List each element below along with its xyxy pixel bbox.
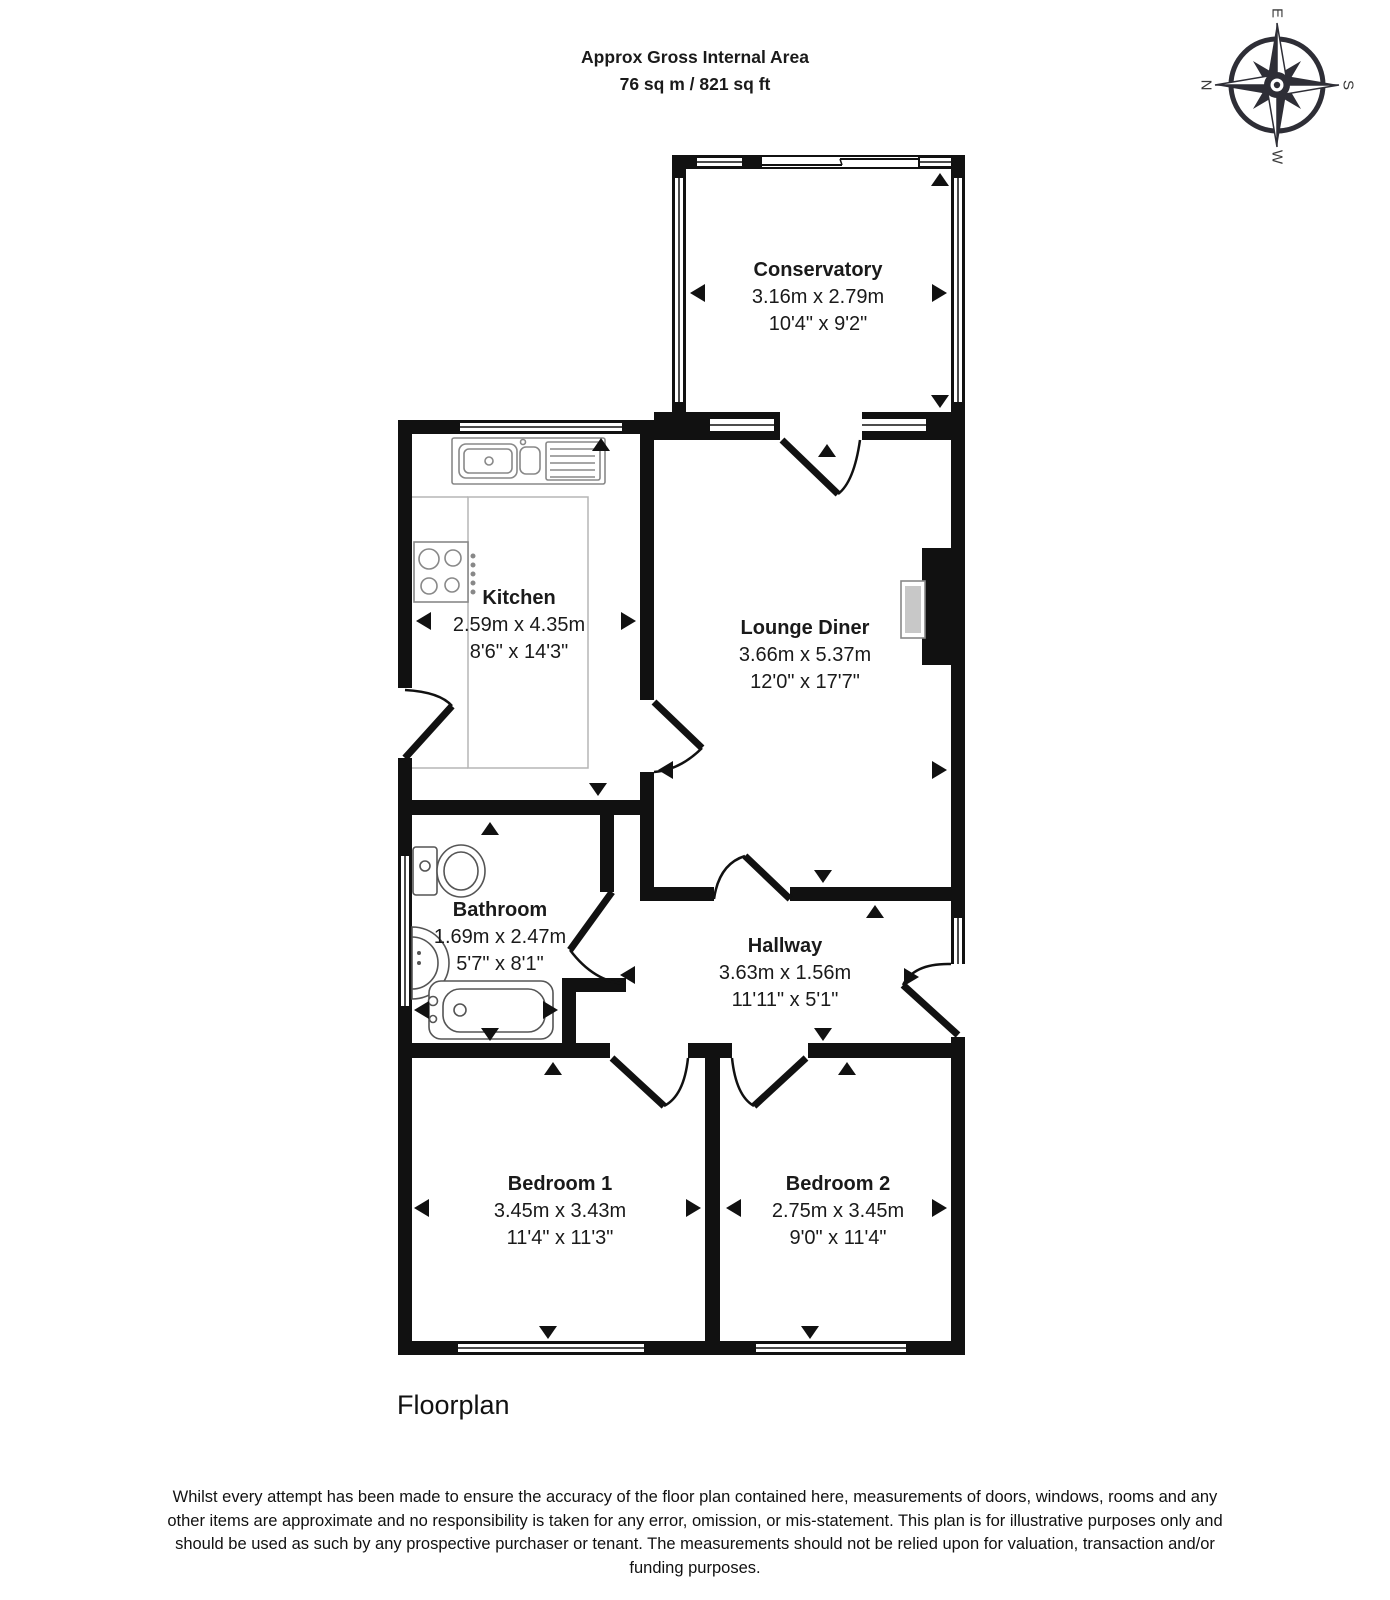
- room-imperial: 11'11" x 5'1": [732, 989, 839, 1011]
- room-name: Lounge Diner: [741, 617, 870, 639]
- arrow-down-icon: [801, 1326, 819, 1339]
- room-metric: 3.45m x 3.43m: [494, 1200, 626, 1222]
- room-metric: 1.69m x 2.47m: [434, 926, 566, 948]
- room-name: Bedroom 1: [508, 1173, 612, 1195]
- conservatory-slider-window: [762, 157, 918, 167]
- lounge-window-left: [710, 419, 774, 431]
- bedroom2-window: [756, 1344, 906, 1352]
- compass-west-label: W: [1269, 150, 1286, 165]
- arrow-down-icon: [589, 783, 607, 796]
- room-label-bedroom-1: Bedroom 1 3.45m x 3.43m 11'4" x 11'3": [494, 1173, 626, 1249]
- arrow-right-icon: [686, 1199, 701, 1217]
- room-metric: 3.63m x 1.56m: [719, 962, 851, 984]
- bathroom-door: [570, 892, 626, 984]
- room-label-conservatory: Conservatory 3.16m x 2.79m 10'4" x 9'2": [752, 259, 884, 335]
- arrow-right-icon: [932, 1199, 947, 1217]
- arrow-down-icon: [539, 1326, 557, 1339]
- floorplan-svg: Conservatory 3.16m x 2.79m 10'4" x 9'2" …: [0, 0, 1390, 1600]
- arrow-down-icon: [814, 870, 832, 883]
- arrow-up-icon: [544, 1062, 562, 1075]
- arrow-left-icon: [658, 761, 673, 779]
- room-metric: 3.66m x 5.37m: [739, 644, 871, 666]
- arrow-up-icon: [818, 444, 836, 457]
- room-name: Hallway: [748, 935, 823, 957]
- arrow-left-icon: [726, 1199, 741, 1217]
- lounge-hallway-door: [714, 856, 790, 899]
- bedroom1-window: [458, 1344, 644, 1352]
- room-label-bathroom: Bathroom 1.69m x 2.47m 5'7" x 8'1": [434, 899, 566, 975]
- room-imperial: 11'4" x 11'3": [507, 1227, 614, 1249]
- kitchen-window: [460, 423, 622, 431]
- room-metric: 2.59m x 4.35m: [453, 614, 585, 636]
- arrow-left-icon: [414, 1001, 429, 1019]
- title-line-1: Approx Gross Internal Area: [0, 44, 1390, 71]
- bathroom-window: [401, 856, 409, 1006]
- conservatory-window-right: [954, 178, 962, 402]
- arrow-up-icon: [866, 905, 884, 918]
- room-label-bedroom-2: Bedroom 2 2.75m x 3.45m 9'0" x 11'4": [772, 1173, 904, 1249]
- conservatory-window-top-right: [920, 158, 951, 166]
- room-label-kitchen: Kitchen 2.59m x 4.35m 8'6" x 14'3": [453, 587, 585, 663]
- conservatory-window-top-left: [697, 158, 742, 166]
- room-name: Bathroom: [453, 899, 547, 921]
- lounge-window-right: [862, 419, 926, 431]
- arrow-left-icon: [414, 1199, 429, 1217]
- arrow-up-icon: [838, 1062, 856, 1075]
- room-name: Conservatory: [754, 259, 884, 281]
- arrow-left-icon: [690, 284, 705, 302]
- floorplan-caption: Floorplan: [397, 1390, 510, 1421]
- bedroom2-door: [732, 1058, 806, 1106]
- room-imperial: 5'7" x 8'1": [456, 953, 543, 975]
- arrow-right-icon: [621, 612, 636, 630]
- room-imperial: 8'6" x 14'3": [470, 641, 569, 663]
- conservatory-window-left: [675, 178, 683, 402]
- disclaimer-text: Whilst every attempt has been made to en…: [165, 1486, 1225, 1580]
- room-imperial: 12'0" x 17'7": [750, 671, 860, 693]
- toilet-icon: [413, 845, 485, 897]
- title-line-2: 76 sq m / 821 sq ft: [0, 71, 1390, 98]
- arrow-down-icon: [814, 1028, 832, 1041]
- arrow-up-icon: [481, 822, 499, 835]
- arrow-left-icon: [416, 612, 431, 630]
- room-label-lounge-diner: Lounge Diner 3.66m x 5.37m 12'0" x 17'7": [739, 617, 871, 693]
- floorplan-page: Approx Gross Internal Area 76 sq m / 821…: [0, 0, 1390, 1600]
- kitchen-hob-icon: [414, 542, 476, 602]
- arrow-right-icon: [932, 761, 947, 779]
- hallway-window: [954, 918, 962, 964]
- fireplace-hearth: [901, 581, 925, 638]
- room-label-hallway: Hallway 3.63m x 1.56m 11'11" x 5'1": [719, 935, 851, 1011]
- page-title: Approx Gross Internal Area 76 sq m / 821…: [0, 44, 1390, 98]
- room-metric: 3.16m x 2.79m: [752, 286, 884, 308]
- kitchen-sink-icon: [452, 438, 605, 484]
- bedroom1-door: [612, 1058, 688, 1106]
- room-imperial: 10'4" x 9'2": [769, 313, 868, 335]
- arrow-up-icon: [931, 173, 949, 186]
- room-imperial: 9'0" x 11'4": [789, 1227, 886, 1249]
- fireplace: [922, 548, 951, 665]
- compass-east-label: E: [1269, 8, 1286, 18]
- conservatory-door: [782, 440, 860, 494]
- room-name: Bedroom 2: [786, 1173, 890, 1195]
- room-metric: 2.75m x 3.45m: [772, 1200, 904, 1222]
- arrow-down-icon: [931, 395, 949, 408]
- kitchen-lounge-door: [654, 702, 702, 772]
- arrow-right-icon: [932, 284, 947, 302]
- room-name: Kitchen: [482, 587, 555, 609]
- room-labels: Conservatory 3.16m x 2.79m 10'4" x 9'2" …: [434, 259, 904, 1249]
